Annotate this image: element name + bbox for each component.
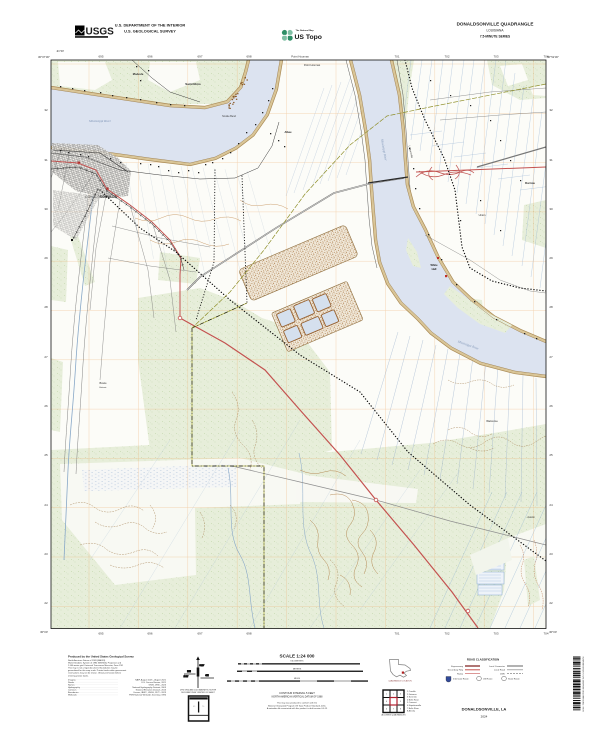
svg-text:Point Houmas: Point Houmas: [304, 63, 321, 67]
svg-text:-91°00': -91°00': [56, 49, 65, 53]
svg-text:Bowie: Bowie: [99, 381, 107, 385]
svg-text:0°28´: 0°28´: [200, 664, 205, 667]
svg-text:30: 30: [44, 207, 48, 211]
svg-text:MN: MN: [187, 671, 191, 673]
svg-text:701: 701: [394, 55, 399, 59]
svg-text:698: 698: [246, 55, 251, 59]
svg-text:26: 26: [549, 404, 553, 408]
svg-text:Historic: Historic: [99, 386, 107, 389]
svg-text:Local Road: Local Road: [494, 670, 506, 672]
svg-text:6 Napoleonville: 6 Napoleonville: [407, 705, 422, 707]
svg-text:U.S. DEPARTMENT OF THE INTERIO: U.S. DEPARTMENT OF THE INTERIOR: [115, 23, 186, 28]
svg-text:24: 24: [549, 503, 553, 507]
svg-text:696: 696: [147, 55, 152, 59]
svg-text:7.5-MINUTE SERIES: 7.5-MINUTE SERIES: [480, 35, 510, 39]
svg-text:World Geodetic System of 1984: World Geodetic System of 1984 (WGS84). P…: [68, 662, 122, 665]
svg-text:DECLINATION AT CENTER OF SHEET: DECLINATION AT CENTER OF SHEET: [181, 691, 215, 694]
svg-text:Produced by the United States: Produced by the United States Geological…: [68, 655, 134, 659]
svg-text:The National Map: The National Map: [296, 29, 315, 32]
svg-text:Ramp: Ramp: [457, 673, 464, 675]
svg-text:29: 29: [44, 256, 48, 260]
svg-text:29: 29: [549, 256, 553, 260]
svg-text:2024: 2024: [481, 715, 488, 719]
svg-text:698: 698: [246, 632, 251, 636]
svg-text:CONTOUR INTERVAL 5 FEET: CONTOUR INTERVAL 5 FEET: [279, 691, 315, 695]
svg-text:1°22´: 1°22´: [184, 675, 189, 678]
svg-text:696: 696: [147, 632, 152, 636]
svg-text:30°07'30": 30°07'30": [38, 55, 50, 59]
svg-text:5 Convent: 5 Convent: [407, 701, 417, 704]
svg-text:697: 697: [197, 55, 202, 59]
svg-text:USGS: USGS: [86, 27, 115, 38]
svg-text:695: 695: [98, 632, 103, 636]
svg-text:Imagery: Imagery: [68, 678, 76, 681]
svg-text:Expressway: Expressway: [451, 665, 464, 668]
svg-text:23: 23: [44, 552, 48, 556]
svg-text:A metadata file associated wit: A metadata file associated with this pro…: [267, 707, 328, 710]
svg-text:NSN. 7643014467000 NGA REF NO: NSN. 7643014467000 NGA REF NO. USGSX24K9…: [582, 656, 585, 711]
svg-text:Mississippi River: Mississippi River: [88, 119, 112, 123]
svg-text:32: 32: [44, 108, 48, 112]
svg-text:National Elevation Dataset, 20: National Elevation Dataset, 2013: [136, 689, 167, 692]
svg-text:697: 697: [197, 632, 202, 636]
svg-text:Local Connector: Local Connector: [489, 665, 505, 668]
svg-text:30: 30: [549, 207, 553, 211]
svg-text:DONALDSONVILLE, LA: DONALDSONVILLE, LA: [462, 707, 507, 712]
svg-text:31: 31: [549, 158, 553, 162]
svg-text:KILOMETERS: KILOMETERS: [291, 661, 305, 663]
svg-text:This map was produced to confo: This map was produced to conform with th…: [277, 702, 318, 705]
svg-text:QUADRANGLE LOCATION: QUADRANGLE LOCATION: [388, 680, 412, 683]
svg-text:22: 22: [44, 601, 48, 605]
svg-text:US Route: US Route: [483, 678, 493, 681]
svg-text:702: 702: [444, 632, 449, 636]
svg-text:27: 27: [44, 355, 48, 359]
svg-text:Contours: Contours: [68, 689, 76, 692]
svg-text:METERS: METERS: [293, 668, 302, 670]
svg-text:U.S. GEOLOGICAL SURVEY: U.S. GEOLOGICAL SURVEY: [124, 29, 176, 34]
svg-text:7 Belle River: 7 Belle River: [407, 707, 419, 710]
svg-text:703: 703: [493, 632, 498, 636]
svg-text:Welcome: Welcome: [486, 419, 498, 423]
svg-text:4WD: 4WD: [500, 673, 505, 675]
svg-text:Wetlands: Wetlands: [68, 694, 77, 697]
svg-text:ADJOINING QUADRANGLES: ADJOINING QUADRANGLES: [381, 714, 406, 717]
svg-text:30°00': 30°00': [549, 630, 557, 634]
svg-text:Union: Union: [479, 213, 486, 217]
svg-text:Albee: Albee: [284, 130, 292, 134]
svg-text:MILES: MILES: [294, 678, 301, 680]
svg-text:SCALE 1:24 000: SCALE 1:24 000: [280, 654, 315, 659]
svg-text:Smoke Bend: Smoke Bend: [222, 115, 236, 118]
svg-text:FWS National Wetlands Inventor: FWS National Wetlands Inventory, 1980: [129, 694, 167, 697]
svg-text:4 Belle Rose: 4 Belle Rose: [407, 699, 420, 701]
svg-text:90°52'30": 90°52'30": [547, 55, 559, 59]
svg-text:2 Geismar: 2 Geismar: [407, 693, 417, 696]
svg-text:ROAD CLASSIFICATION: ROAD CLASSIFICATION: [467, 658, 499, 662]
svg-text:25: 25: [44, 453, 48, 457]
svg-text:1 Carville: 1 Carville: [407, 690, 417, 693]
svg-text:702: 702: [444, 55, 449, 59]
svg-text:US Topo: US Topo: [295, 34, 322, 41]
svg-text:Hall: Hall: [432, 267, 437, 271]
svg-text:GN: GN: [205, 675, 209, 677]
svg-text:3 Sorrento: 3 Sorrento: [407, 696, 418, 699]
svg-text:This map is not a legal docume: This map is not a legal document. Bounda…: [68, 667, 118, 670]
svg-text:30°00': 30°00': [40, 630, 48, 634]
svg-text:701: 701: [394, 632, 399, 636]
svg-text:703: 703: [493, 55, 498, 59]
svg-text:27: 27: [549, 355, 553, 359]
svg-text:22: 22: [549, 601, 553, 605]
svg-text:Aucoin: Aucoin: [527, 516, 535, 519]
svg-text:reservations may not be shown.: reservations may not be shown. Obtain pe…: [68, 672, 122, 675]
svg-text:25: 25: [549, 453, 553, 457]
svg-text:28: 28: [549, 305, 553, 309]
svg-text:704: 704: [543, 632, 548, 636]
svg-text:695: 695: [98, 55, 103, 59]
svg-text:Point Houmas: Point Houmas: [291, 55, 309, 59]
svg-text:National Geospatial Program US: National Geospatial Program US Topo Prod…: [268, 704, 327, 707]
svg-text:State Route: State Route: [508, 678, 520, 681]
svg-text:White: White: [430, 263, 438, 267]
svg-text:31: 31: [44, 158, 48, 162]
svg-text:26: 26: [44, 404, 48, 408]
svg-text:Secondary Hwy: Secondary Hwy: [448, 669, 464, 672]
svg-text:NAIP, August 2021 - August 202: NAIP, August 2021 - August 2021: [135, 678, 167, 681]
svg-text:entering private lands.: entering private lands.: [68, 674, 89, 677]
svg-text:Interstate Route: Interstate Route: [453, 678, 469, 681]
svg-text:23: 23: [549, 552, 553, 556]
svg-text:8 Amelia: 8 Amelia: [407, 710, 416, 713]
svg-text:Saint Elmo: Saint Elmo: [185, 82, 201, 86]
svg-text:32: 32: [549, 108, 553, 112]
svg-text:DONALDSONVILLE QUADRANGLE: DONALDSONVILLE QUADRANGLE: [457, 22, 534, 27]
svg-text:Darrow: Darrow: [525, 181, 535, 185]
svg-text:NORTH AMERICAN VERTICAL DATUM: NORTH AMERICAN VERTICAL DATUM OF 1988: [272, 695, 323, 698]
svg-text:24: 24: [44, 503, 48, 507]
svg-text:Modeste: Modeste: [133, 72, 144, 76]
svg-text:28: 28: [44, 305, 48, 309]
svg-text:LOUISIANA: LOUISIANA: [486, 29, 504, 33]
